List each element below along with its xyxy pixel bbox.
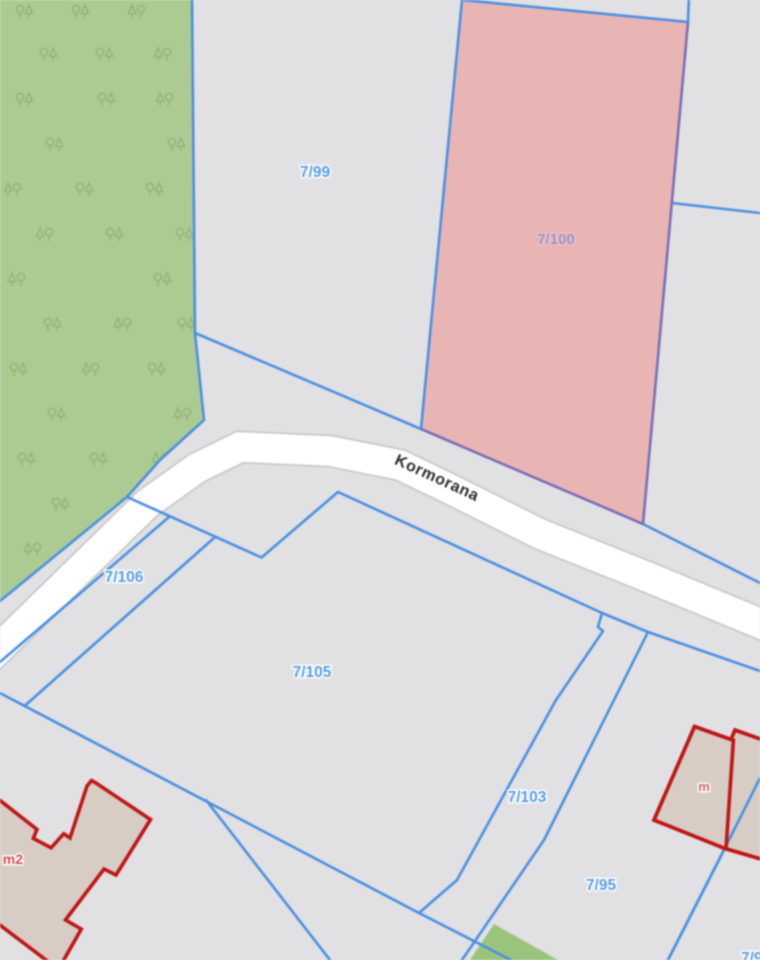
svg-text:7/106: 7/106 <box>105 569 144 586</box>
svg-text:7/99: 7/99 <box>300 164 331 181</box>
svg-text:7/9: 7/9 <box>741 950 760 960</box>
svg-text:7/100: 7/100 <box>537 231 575 248</box>
svg-text:m2: m2 <box>3 851 23 867</box>
svg-text:7/103: 7/103 <box>508 789 547 806</box>
svg-text:m: m <box>698 779 710 794</box>
svg-text:7/95: 7/95 <box>586 877 617 894</box>
svg-text:7/105: 7/105 <box>293 664 332 681</box>
